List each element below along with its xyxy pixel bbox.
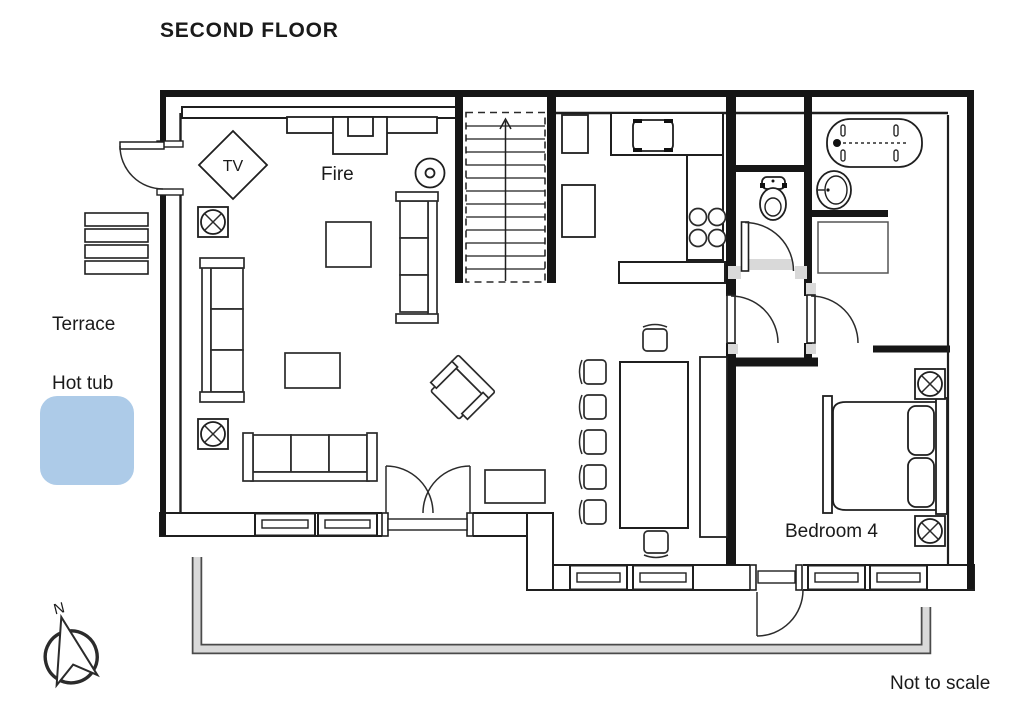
compass-north-label: N xyxy=(52,599,67,618)
door-thresholds xyxy=(728,259,816,354)
chair xyxy=(580,360,607,384)
stairs-up-arrow-icon xyxy=(500,119,511,281)
hot-tub-label: Hot tub xyxy=(52,373,113,394)
bench xyxy=(700,357,727,537)
dining-area xyxy=(580,325,728,558)
coffee-table xyxy=(326,222,371,267)
toilet-icon xyxy=(760,177,787,220)
kitchen-island xyxy=(619,262,725,283)
page-title: SECOND FLOOR xyxy=(160,19,339,42)
chair xyxy=(580,395,607,419)
tv-unit: TV xyxy=(199,131,267,199)
ceiling-light-icon xyxy=(198,419,228,449)
hot-tub-shape xyxy=(40,396,134,485)
living-room-furniture xyxy=(200,192,545,503)
terrace-label: Terrace xyxy=(52,314,115,335)
bathroom xyxy=(817,119,922,273)
bathtub-icon xyxy=(827,119,922,167)
pillow xyxy=(908,406,934,455)
staircase xyxy=(466,113,545,283)
pillow xyxy=(908,458,934,507)
sink-icon xyxy=(633,119,673,152)
basin-icon xyxy=(817,171,851,209)
light-fitting-icon xyxy=(416,159,445,188)
bedroom-4 xyxy=(823,396,947,514)
wc xyxy=(760,177,787,220)
french-doors xyxy=(382,466,473,538)
terrace-steps xyxy=(85,213,148,274)
sofa xyxy=(200,258,244,402)
console-table xyxy=(485,470,545,503)
sofa xyxy=(243,433,377,481)
bathroom-door xyxy=(807,295,858,343)
fire-label: Fire xyxy=(321,164,354,185)
floor-plan-page: TV xyxy=(0,0,1030,704)
ceiling-light-icon xyxy=(915,369,945,399)
wardrobe xyxy=(818,222,888,273)
kitchen-unit xyxy=(562,185,595,237)
hall-door xyxy=(727,295,778,343)
terrace-door xyxy=(120,141,183,195)
chair xyxy=(580,500,607,524)
fridge xyxy=(562,115,588,153)
chair xyxy=(643,325,667,352)
fireplace xyxy=(287,117,437,154)
kitchen xyxy=(562,113,726,283)
chair xyxy=(644,531,668,558)
sofa xyxy=(396,192,438,323)
headboard xyxy=(936,398,947,514)
side-table xyxy=(285,353,340,388)
ceiling-light-icon xyxy=(915,516,945,546)
scale-note: Not to scale xyxy=(890,673,990,694)
dining-table xyxy=(620,362,688,528)
armchair xyxy=(426,355,495,424)
chair xyxy=(580,465,607,489)
bedroom-4-label: Bedroom 4 xyxy=(785,521,878,542)
chair xyxy=(580,430,607,454)
ceiling-light-icon xyxy=(198,207,228,237)
compass-icon: N xyxy=(32,594,103,688)
tv-label: TV xyxy=(223,158,244,175)
floor-plan-svg: TV xyxy=(0,0,1030,704)
balcony-door xyxy=(750,563,803,636)
bed xyxy=(823,396,947,514)
